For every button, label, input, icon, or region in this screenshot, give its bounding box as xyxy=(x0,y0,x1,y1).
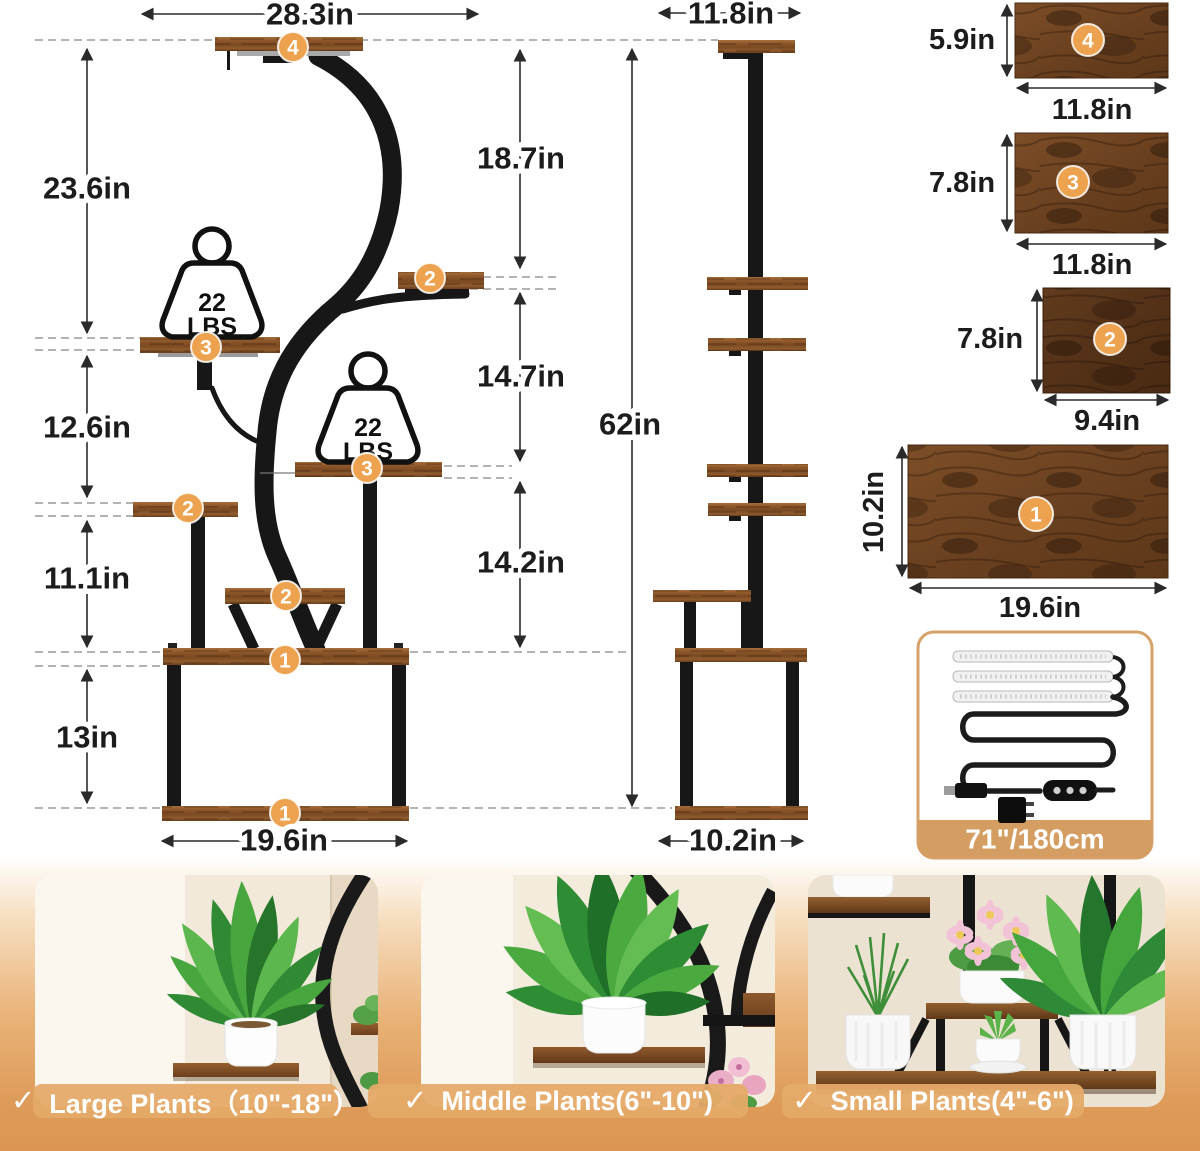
caption-text: Small Plants(4"-6") xyxy=(831,1086,1074,1117)
light-length-label: 71"/180cm xyxy=(965,824,1104,855)
dracaena-pot xyxy=(1070,1015,1136,1071)
dim-left-4: 13in xyxy=(56,720,118,755)
panel4-width: 11.8in xyxy=(1052,94,1133,126)
panel-badge: 3 xyxy=(1067,172,1079,195)
dim-side-top: 11.8in xyxy=(688,0,774,31)
dim-right-2: 14.7in xyxy=(477,359,565,394)
small-plants-scene xyxy=(808,875,1165,1107)
truss-leg-right xyxy=(316,604,337,649)
badge-number: 2 xyxy=(182,498,194,521)
front-shelves xyxy=(133,37,484,821)
plant-stand-dimension-diagram: 22 LBS 22 LBS 4 2 3 3 xyxy=(0,0,1200,1151)
side-steel xyxy=(680,52,799,806)
grow-light-kit: 71"/180cm xyxy=(918,632,1152,858)
dim-left-2: 12.6in xyxy=(43,410,131,445)
badge-number: 3 xyxy=(200,337,212,360)
caption-large-plants: ✓ Large Plants（10"-18"） xyxy=(33,1084,338,1118)
side-view: 11.8in 62in 10.2in xyxy=(599,0,808,858)
large-plant-scene xyxy=(35,875,378,1107)
dim-right-1: 18.7in xyxy=(477,141,565,176)
caption-small-plants: ✓ Small Plants(4"-6") xyxy=(782,1084,1084,1118)
caption-text: Middle Plants(6"-10") xyxy=(441,1086,713,1117)
check-icon: ✓ xyxy=(792,1083,816,1118)
panel-badge: 1 xyxy=(1030,504,1042,527)
led-strips xyxy=(953,651,1113,702)
badge-number: 3 xyxy=(361,458,373,481)
truss-leg-left xyxy=(233,604,254,649)
dimension-diagram-canvas: 22 LBS 22 LBS 4 2 3 3 xyxy=(0,0,1200,870)
panel3-height: 7.8in xyxy=(929,167,995,199)
herb-pot xyxy=(846,1015,910,1069)
dim-side-height: 62in xyxy=(599,407,661,442)
panel-badge: 4 xyxy=(1082,30,1094,53)
panel1-width: 19.6in xyxy=(999,592,1081,624)
check-icon: ✓ xyxy=(11,1083,35,1118)
panel2-height: 7.8in xyxy=(957,323,1023,355)
dim-side-bottom: 10.2in xyxy=(689,823,777,858)
dim-right-3: 14.2in xyxy=(477,545,565,580)
front-dimensions: 28.3in 23.6in 12.6in 11.1in 13in 18.7in … xyxy=(43,0,565,858)
panel4-height: 5.9in xyxy=(929,24,995,56)
badge-number: 2 xyxy=(424,268,436,291)
bracket-arc xyxy=(212,388,264,444)
side-shelves xyxy=(653,40,808,820)
panel-badge: 2 xyxy=(1104,329,1116,352)
badge-number: 2 xyxy=(280,586,292,609)
badge-number: 1 xyxy=(279,650,291,673)
panel1-height: 10.2in xyxy=(858,471,890,553)
dim-width-bottom: 19.6in xyxy=(240,823,328,858)
caption-text: Large Plants（10"-18"） xyxy=(49,1082,360,1121)
dim-width-top: 28.3in xyxy=(266,0,354,32)
dim-left-1: 23.6in xyxy=(43,171,131,206)
weight-capacity-icon-2: 22 LBS xyxy=(318,354,418,466)
shelf-panels: 4 5.9in 11.8in 3 7.8in 11.8in 2 7.8in 9.… xyxy=(858,3,1170,624)
middle-plant-scene xyxy=(421,875,775,1107)
panel3-width: 11.8in xyxy=(1052,249,1133,281)
photo-large-plants xyxy=(35,875,378,1107)
steel-posts xyxy=(167,50,469,807)
dim-left-3: 11.1in xyxy=(44,561,130,596)
check-icon: ✓ xyxy=(403,1083,427,1118)
caption-middle-plants: ✓ Middle Plants(6"-10") xyxy=(368,1084,748,1118)
white-pot xyxy=(582,997,646,1053)
badge-number: 4 xyxy=(287,37,299,60)
side-dimensions: 11.8in 62in 10.2in xyxy=(599,0,803,858)
weight-capacity-icon-1: 22 LBS xyxy=(162,229,262,341)
photo-middle-plants xyxy=(421,875,775,1107)
white-pot xyxy=(225,1018,277,1066)
photo-small-plants xyxy=(808,875,1165,1107)
panel2-width: 9.4in xyxy=(1074,405,1140,437)
